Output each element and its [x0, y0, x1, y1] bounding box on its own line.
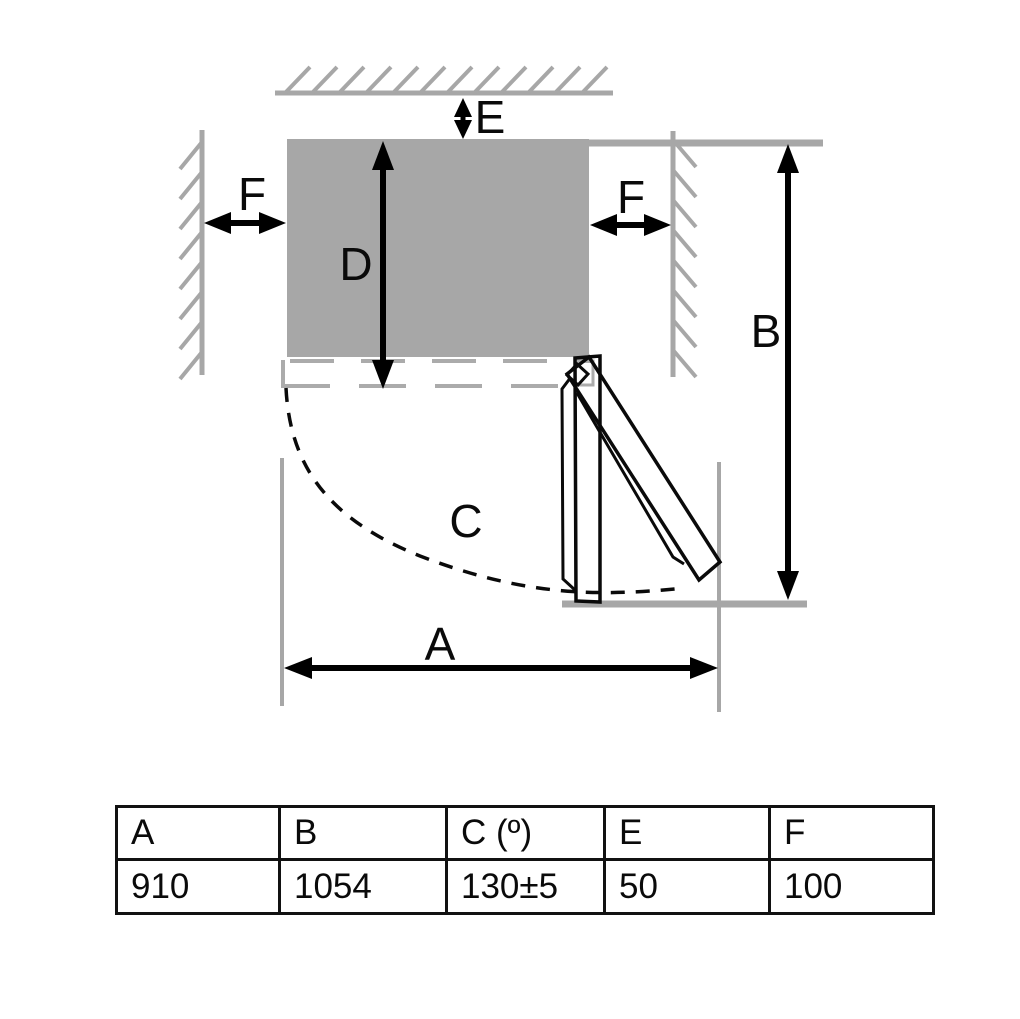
installation-clearance-diagram: E F F D B C: [0, 0, 1020, 780]
table-header-e: E: [605, 807, 770, 860]
table-value-b: 1054: [280, 860, 447, 914]
dimension-a: A: [284, 618, 718, 679]
hatch-mark: [180, 232, 202, 259]
hatch-mark: [394, 67, 418, 92]
right-wall-hatching: [673, 140, 696, 377]
hatch-mark: [180, 172, 202, 199]
door-swing-arc: [286, 388, 684, 593]
dimension-f-left: F: [204, 168, 286, 234]
table-header-a: A: [117, 807, 280, 860]
dimension-label-f-left: F: [238, 168, 266, 220]
hatch-mark: [673, 170, 696, 197]
left-wall-hatching: [180, 142, 202, 379]
table-header-row: A B C (º) E F: [117, 807, 934, 860]
hatch-mark: [673, 230, 696, 257]
left-wall: [180, 130, 202, 379]
dimension-f-left-arrowhead-left: [204, 212, 231, 234]
table-value-f: 100: [770, 860, 934, 914]
dimension-b: B: [751, 144, 799, 600]
table-header-c: C (º): [447, 807, 605, 860]
door-open-130deg: [567, 357, 720, 580]
dimensions-table: A B C (º) E F 910 1054 130±5 50 100: [115, 805, 935, 915]
hatch-mark: [556, 67, 580, 92]
hatch-mark: [448, 67, 472, 92]
dimension-label-b: B: [751, 305, 782, 357]
hatch-mark: [421, 67, 445, 92]
door-90-inner-edge: [562, 377, 575, 590]
hatch-mark: [180, 202, 202, 229]
hatch-mark: [475, 67, 499, 92]
hatch-mark: [673, 290, 696, 317]
hatch-mark: [673, 320, 696, 347]
table-value-e: 50: [605, 860, 770, 914]
dimension-e-arrowhead-down: [454, 120, 472, 139]
dimension-label-e: E: [475, 91, 506, 143]
cabinet-top-view: [287, 139, 589, 357]
top-wall-hatching: [286, 67, 607, 92]
table-value-c: 130±5: [447, 860, 605, 914]
door-130-panel: [567, 357, 720, 580]
dimension-e: E: [454, 91, 505, 143]
dimension-label-f-right: F: [617, 171, 645, 223]
table-header-f: F: [770, 807, 934, 860]
hatch-mark: [529, 67, 553, 92]
dimension-b-arrowhead-up: [777, 144, 799, 173]
hatch-mark: [180, 352, 202, 379]
dimension-label-c: C: [449, 495, 482, 547]
table-value-a: 910: [117, 860, 280, 914]
hatch-mark: [673, 200, 696, 227]
dimension-f-right-arrowhead-right: [644, 214, 671, 236]
hatch-mark: [367, 67, 391, 92]
hatch-mark: [180, 292, 202, 319]
table-value-row: 910 1054 130±5 50 100: [117, 860, 934, 914]
hatch-mark: [583, 67, 607, 92]
dimension-a-arrowhead-right: [690, 657, 718, 679]
dimension-label-a: A: [425, 618, 456, 670]
door-closed-dashed-outline: [283, 360, 593, 388]
hatch-mark: [673, 260, 696, 287]
hatch-mark: [286, 67, 310, 92]
hatch-mark: [673, 350, 696, 377]
hatch-mark: [313, 67, 337, 92]
appliance-clearance-page: E F F D B C: [0, 0, 1020, 1019]
right-wall: [673, 131, 696, 377]
top-wall: [275, 67, 613, 93]
hatch-mark: [340, 67, 364, 92]
hatch-mark: [180, 142, 202, 169]
dimension-label-d: D: [339, 238, 372, 290]
hatch-mark: [180, 262, 202, 289]
hatch-mark: [180, 322, 202, 349]
dimension-f-right: F: [590, 171, 671, 236]
hatch-mark: [502, 67, 526, 92]
table-header-b: B: [280, 807, 447, 860]
dimension-b-arrowhead-down: [777, 571, 799, 600]
dimension-a-arrowhead-left: [284, 657, 312, 679]
dimension-f-right-arrowhead-left: [590, 214, 617, 236]
dimension-e-arrowhead-up: [454, 98, 472, 117]
